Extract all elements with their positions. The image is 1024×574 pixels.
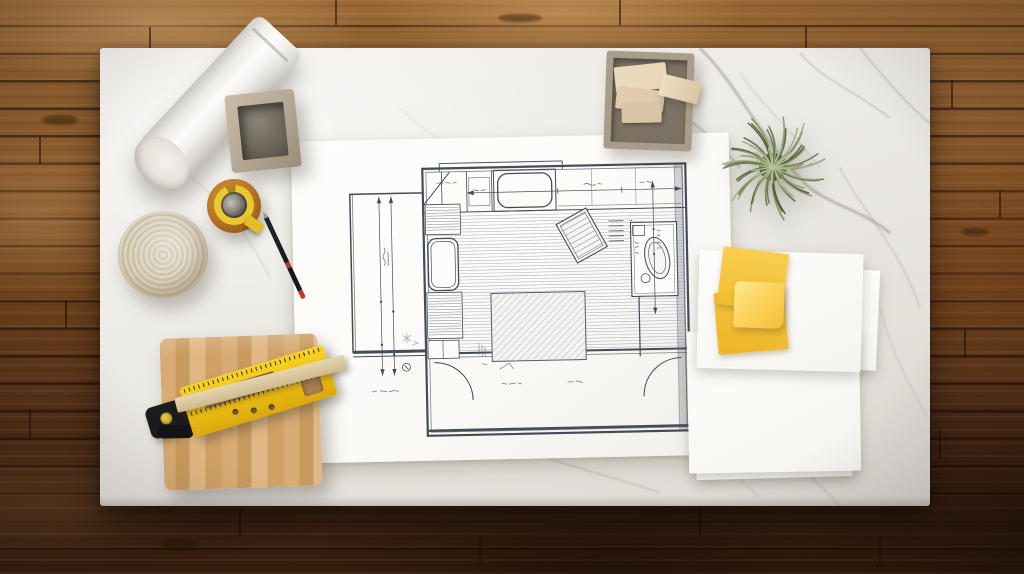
- tool-hole: [232, 408, 239, 415]
- wood-sample-block: [621, 102, 661, 123]
- square-vessel: [224, 89, 302, 174]
- desk-scene-photo: [0, 0, 1024, 574]
- tool-hole: [250, 407, 257, 414]
- tape-center-hole: [221, 192, 247, 218]
- air-plant-drawing: [703, 95, 843, 235]
- marble-desk: [100, 48, 930, 506]
- wood-samples-tray: [603, 50, 694, 151]
- floor-plan-drawing: [291, 132, 736, 463]
- masking-tape-roll: [207, 179, 261, 233]
- blueprint-floor-plan: [291, 132, 736, 463]
- tool-hole: [268, 403, 275, 410]
- rope-coil: [118, 211, 208, 299]
- tool-screw: [159, 411, 174, 426]
- tool-clamp-lever: [158, 425, 194, 439]
- sticky-note-curled: [733, 281, 785, 329]
- vessel-cavity: [237, 102, 288, 161]
- air-plant: [703, 95, 843, 235]
